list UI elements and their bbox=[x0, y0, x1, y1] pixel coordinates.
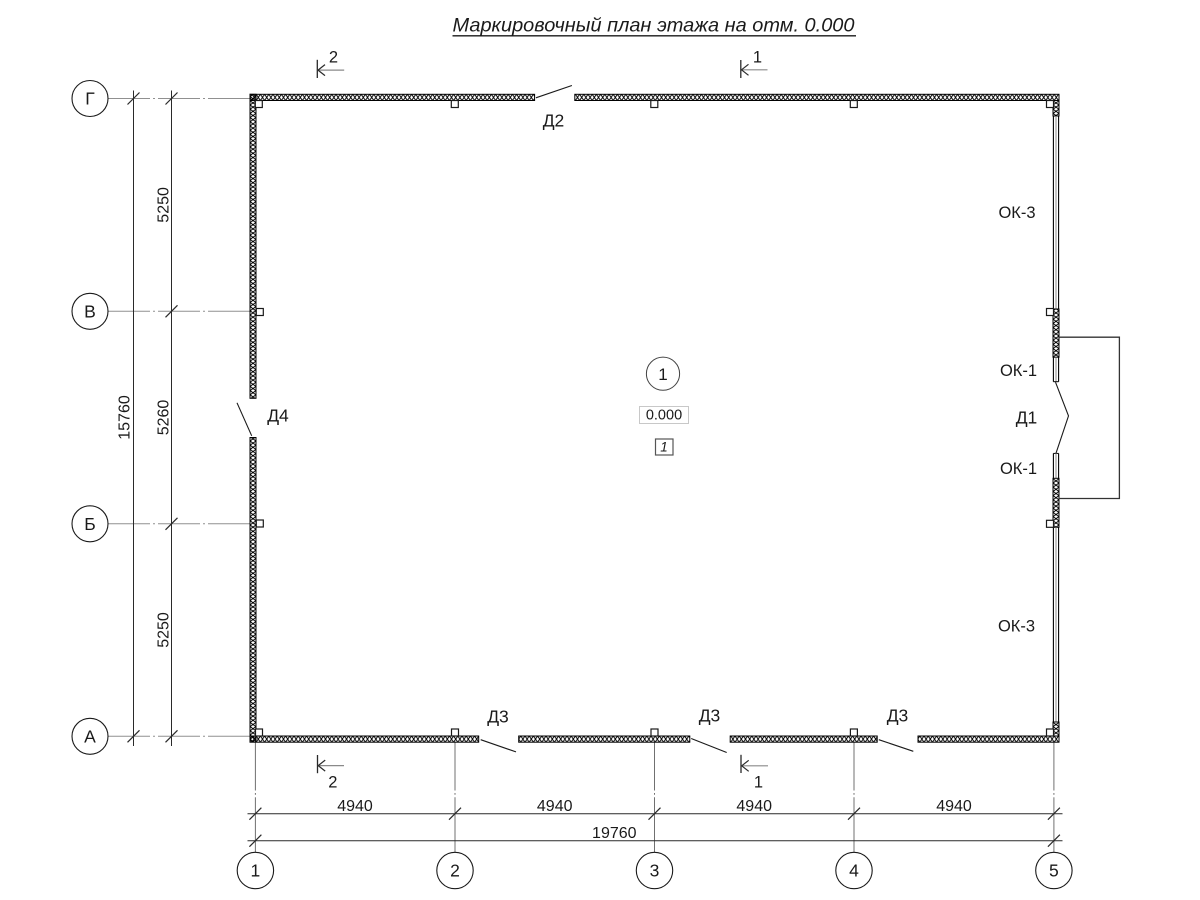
svg-text:ОК-3: ОК-3 bbox=[998, 618, 1035, 636]
svg-text:Д3: Д3 bbox=[699, 706, 721, 726]
svg-text:1: 1 bbox=[754, 774, 763, 792]
svg-text:1: 1 bbox=[658, 365, 667, 384]
svg-text:5250: 5250 bbox=[156, 187, 173, 223]
svg-text:15760: 15760 bbox=[117, 395, 134, 440]
svg-text:В: В bbox=[84, 302, 96, 322]
svg-text:5260: 5260 bbox=[156, 400, 173, 436]
svg-text:1: 1 bbox=[251, 861, 261, 881]
svg-text:Д1: Д1 bbox=[1016, 408, 1038, 428]
svg-text:ОК-3: ОК-3 bbox=[999, 204, 1036, 222]
svg-text:Г: Г bbox=[85, 89, 95, 109]
svg-text:А: А bbox=[84, 727, 96, 747]
svg-text:4940: 4940 bbox=[337, 798, 373, 815]
svg-text:4940: 4940 bbox=[736, 798, 772, 815]
svg-text:5: 5 bbox=[1049, 861, 1059, 881]
svg-text:Маркировочный план этажа на от: Маркировочный план этажа на отм. 0.000 bbox=[453, 16, 855, 37]
svg-text:ОК-1: ОК-1 bbox=[1000, 362, 1037, 380]
svg-text:4: 4 bbox=[849, 861, 859, 881]
svg-text:Б: Б bbox=[84, 514, 95, 534]
svg-text:Д2: Д2 bbox=[543, 111, 565, 131]
svg-text:ОК-1: ОК-1 bbox=[1000, 460, 1037, 478]
svg-text:Д3: Д3 bbox=[487, 707, 509, 727]
svg-text:0.000: 0.000 bbox=[646, 408, 682, 424]
svg-text:Д4: Д4 bbox=[267, 406, 289, 426]
svg-text:4940: 4940 bbox=[936, 798, 972, 815]
svg-text:19760: 19760 bbox=[592, 825, 637, 842]
svg-text:2: 2 bbox=[450, 861, 460, 881]
svg-text:2: 2 bbox=[328, 774, 337, 792]
svg-text:4940: 4940 bbox=[537, 798, 573, 815]
svg-text:3: 3 bbox=[650, 861, 660, 881]
svg-text:5250: 5250 bbox=[156, 612, 173, 648]
svg-text:2: 2 bbox=[329, 49, 338, 67]
svg-text:1: 1 bbox=[660, 440, 668, 455]
svg-text:Д3: Д3 bbox=[887, 706, 909, 726]
svg-text:1: 1 bbox=[753, 49, 762, 67]
